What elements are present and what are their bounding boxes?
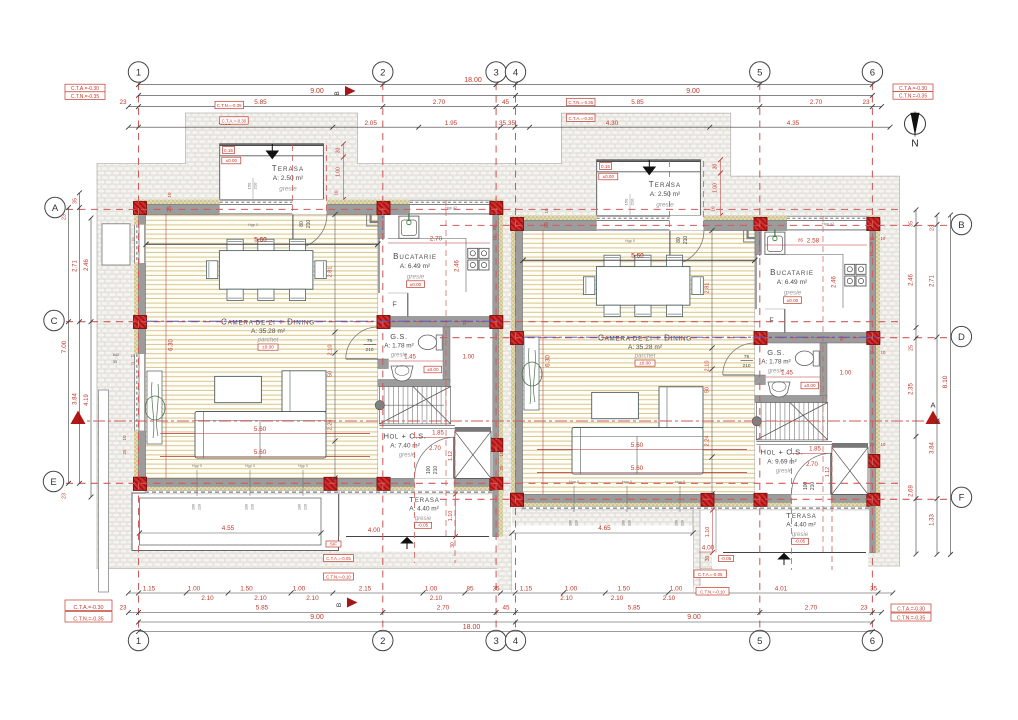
svg-text:100: 100 bbox=[569, 520, 573, 526]
svg-text:100: 100 bbox=[622, 520, 626, 526]
svg-text:23: 23 bbox=[119, 605, 127, 612]
svg-text:5.60: 5.60 bbox=[631, 465, 644, 472]
svg-text:A: 35.28 m²: A: 35.28 m² bbox=[251, 328, 286, 335]
svg-text:G.S.: G.S. bbox=[767, 348, 784, 357]
svg-text:2.70: 2.70 bbox=[430, 236, 443, 243]
svg-text:30: 30 bbox=[713, 164, 719, 170]
svg-text:10: 10 bbox=[881, 442, 886, 447]
svg-text:±0.00: ±0.00 bbox=[410, 282, 422, 287]
svg-text:parchet: parchet bbox=[257, 337, 279, 344]
svg-text:100: 100 bbox=[298, 504, 302, 510]
svg-text:C.T.N.=-0.35: C.T.N.=-0.35 bbox=[71, 94, 99, 100]
svg-text:A: 2.50 m²: A: 2.50 m² bbox=[650, 191, 681, 198]
svg-text:6.30: 6.30 bbox=[546, 355, 552, 367]
svg-text:25: 25 bbox=[499, 465, 504, 471]
svg-text:4: 4 bbox=[513, 636, 518, 647]
svg-text:5,60: 5,60 bbox=[631, 253, 644, 260]
svg-text:5,60: 5,60 bbox=[254, 237, 267, 244]
svg-text:35: 35 bbox=[870, 585, 878, 592]
svg-text:9.00: 9.00 bbox=[310, 88, 324, 95]
svg-text:C.T.A.=-0.30: C.T.A.=-0.30 bbox=[71, 86, 99, 92]
svg-text:6: 6 bbox=[870, 67, 875, 78]
svg-text:9.00: 9.00 bbox=[310, 614, 324, 621]
svg-text:1.00: 1.00 bbox=[293, 585, 306, 592]
svg-text:±0.00: ±0.00 bbox=[804, 383, 816, 388]
svg-text:9.00: 9.00 bbox=[687, 614, 701, 621]
svg-text:1.00: 1.00 bbox=[840, 371, 852, 377]
svg-text:D: D bbox=[958, 332, 965, 343]
svg-text:C.T.N.=-0.35: C.T.N.=-0.35 bbox=[897, 615, 925, 621]
svg-text:F: F bbox=[959, 493, 965, 504]
svg-text:Hgp 0: Hgp 0 bbox=[298, 464, 308, 468]
svg-text:7.00: 7.00 bbox=[61, 340, 68, 353]
svg-text:10: 10 bbox=[499, 451, 504, 457]
svg-text:1.00: 1.00 bbox=[463, 355, 475, 361]
svg-text:-0.05: -0.05 bbox=[795, 539, 806, 544]
svg-text:1.10: 1.10 bbox=[705, 527, 711, 538]
svg-text:2.10: 2.10 bbox=[430, 595, 443, 602]
svg-text:±0.00: ±0.00 bbox=[787, 298, 799, 303]
svg-text:210: 210 bbox=[304, 504, 308, 510]
svg-text:210: 210 bbox=[306, 220, 312, 229]
svg-text:2.10: 2.10 bbox=[705, 361, 711, 372]
svg-text:1.00: 1.00 bbox=[565, 585, 578, 592]
svg-text:210: 210 bbox=[742, 363, 750, 369]
svg-text:-0.05: -0.05 bbox=[721, 556, 732, 561]
svg-text:3.84: 3.84 bbox=[73, 393, 79, 405]
svg-text:4.65: 4.65 bbox=[598, 525, 611, 532]
svg-text:2.46: 2.46 bbox=[455, 260, 461, 272]
svg-text:2.10: 2.10 bbox=[560, 595, 573, 602]
svg-text:1: 1 bbox=[136, 636, 141, 647]
svg-text:4.00: 4.00 bbox=[368, 527, 381, 534]
svg-text:1.33: 1.33 bbox=[930, 514, 936, 526]
svg-text:1.85: 1.85 bbox=[809, 447, 821, 453]
svg-text:6.30: 6.30 bbox=[169, 339, 175, 351]
svg-text:4: 4 bbox=[513, 67, 518, 78]
svg-text:Hgp 0: Hgp 0 bbox=[245, 464, 255, 468]
svg-text:5.60: 5.60 bbox=[254, 449, 267, 456]
svg-text:10: 10 bbox=[167, 192, 172, 198]
svg-text:A: 1.78 m²: A: 1.78 m² bbox=[384, 343, 413, 350]
svg-text:210: 210 bbox=[575, 520, 579, 526]
svg-text:-0.05: -0.05 bbox=[418, 523, 429, 528]
svg-text:2.35: 2.35 bbox=[909, 383, 915, 395]
svg-text:45: 45 bbox=[502, 605, 510, 612]
svg-text:gresie: gresie bbox=[792, 532, 809, 538]
svg-text:C.T.N.=-0.35: C.T.N.=-0.35 bbox=[217, 103, 242, 108]
svg-text:35,35: 35,35 bbox=[499, 120, 515, 127]
svg-text:A: 4.40 m²: A: 4.40 m² bbox=[409, 506, 438, 513]
svg-text:25: 25 bbox=[839, 336, 844, 342]
svg-text:4.35: 4.35 bbox=[787, 120, 800, 127]
svg-text:parchet: parchet bbox=[634, 353, 656, 360]
svg-text:A: 4.40 m²: A: 4.40 m² bbox=[786, 522, 815, 529]
svg-text:210: 210 bbox=[433, 466, 439, 475]
svg-text:gresie: gresie bbox=[656, 202, 674, 209]
svg-text:A: A bbox=[930, 401, 935, 410]
svg-text:210: 210 bbox=[251, 504, 255, 510]
svg-text:1.00: 1.00 bbox=[188, 585, 201, 592]
svg-text:0.15: 0.15 bbox=[224, 148, 233, 153]
svg-text:35: 35 bbox=[113, 360, 117, 364]
svg-text:23: 23 bbox=[860, 605, 868, 612]
svg-text:2.71: 2.71 bbox=[73, 260, 79, 272]
svg-text:85: 85 bbox=[466, 585, 474, 592]
svg-text:2.81: 2.81 bbox=[328, 267, 334, 278]
svg-text:Hgp 0: Hgp 0 bbox=[192, 464, 202, 468]
svg-text:BUCATARIE: BUCATARIE bbox=[393, 252, 437, 261]
svg-text:50: 50 bbox=[328, 371, 334, 377]
svg-text:100: 100 bbox=[192, 504, 196, 510]
svg-text:1.50: 1.50 bbox=[617, 585, 630, 592]
svg-text:gresie: gresie bbox=[776, 469, 793, 475]
svg-text:30: 30 bbox=[705, 556, 711, 562]
svg-text:25: 25 bbox=[869, 241, 874, 247]
svg-text:50: 50 bbox=[705, 387, 711, 393]
svg-text:0.15: 0.15 bbox=[601, 164, 610, 169]
svg-text:25: 25 bbox=[462, 320, 467, 326]
svg-text:8.10: 8.10 bbox=[942, 375, 949, 388]
svg-text:2.10: 2.10 bbox=[663, 595, 676, 602]
svg-text:gresie: gresie bbox=[399, 453, 416, 459]
svg-text:75: 75 bbox=[744, 354, 750, 360]
svg-text:C.T.A.=-0.05: C.T.A.=-0.05 bbox=[698, 572, 723, 577]
svg-text:C.T.N.=-0.35: C.T.N.=-0.35 bbox=[568, 100, 593, 105]
svg-text:A: 9.69 m²: A: 9.69 m² bbox=[767, 459, 796, 466]
svg-text:10: 10 bbox=[869, 251, 874, 257]
svg-text:±0.00: ±0.00 bbox=[262, 345, 274, 350]
svg-text:150: 150 bbox=[247, 182, 252, 189]
svg-text:9.00: 9.00 bbox=[686, 88, 700, 95]
svg-text:C.T.A.=-0.05: C.T.A.=-0.05 bbox=[326, 556, 351, 561]
svg-text:1.00: 1.00 bbox=[670, 585, 683, 592]
svg-text:1: 1 bbox=[136, 67, 141, 78]
svg-text:2.46: 2.46 bbox=[84, 259, 90, 271]
svg-text:3.84: 3.84 bbox=[930, 442, 936, 454]
svg-text:TERASA: TERASA bbox=[272, 164, 304, 173]
svg-text:1.95: 1.95 bbox=[445, 120, 458, 127]
svg-text:35: 35 bbox=[492, 585, 500, 592]
svg-text:B: B bbox=[336, 603, 343, 607]
svg-text:SIF: SIF bbox=[330, 541, 337, 546]
svg-text:1.45: 1.45 bbox=[404, 355, 416, 361]
svg-text:2.69: 2.69 bbox=[909, 485, 915, 497]
svg-text:TERASA: TERASA bbox=[649, 180, 681, 189]
svg-text:C.T.A.=-0.30: C.T.A.=-0.30 bbox=[569, 116, 594, 121]
svg-text:23: 23 bbox=[930, 225, 936, 231]
svg-text:18.00: 18.00 bbox=[463, 624, 481, 631]
svg-text:1.45: 1.45 bbox=[781, 371, 793, 377]
svg-text:2.70: 2.70 bbox=[810, 99, 823, 106]
svg-text:5: 5 bbox=[757, 67, 762, 78]
svg-text:±0.00: ±0.00 bbox=[226, 158, 238, 163]
svg-text:E: E bbox=[50, 477, 56, 488]
svg-text:2: 2 bbox=[380, 67, 385, 78]
svg-text:1.12: 1.12 bbox=[825, 467, 831, 477]
svg-text:4.19: 4.19 bbox=[84, 394, 90, 406]
svg-text:80: 80 bbox=[676, 237, 682, 243]
svg-text:100: 100 bbox=[675, 520, 679, 526]
svg-text:1.12: 1.12 bbox=[448, 451, 454, 461]
svg-text:4.30: 4.30 bbox=[606, 120, 619, 127]
svg-text:F: F bbox=[392, 302, 396, 309]
svg-text:N: N bbox=[911, 139, 918, 150]
svg-text:gresie: gresie bbox=[407, 274, 425, 281]
svg-text:5.60: 5.60 bbox=[254, 426, 267, 433]
svg-text:642: 642 bbox=[113, 353, 119, 357]
svg-text:10: 10 bbox=[544, 208, 549, 214]
svg-text:23: 23 bbox=[862, 99, 870, 106]
svg-text:5.85: 5.85 bbox=[256, 605, 269, 612]
svg-text:2.46: 2.46 bbox=[832, 276, 838, 288]
svg-text:C.T.A.=-0.30: C.T.A.=-0.30 bbox=[899, 86, 927, 92]
svg-text:18.00: 18.00 bbox=[464, 77, 482, 84]
svg-text:1.15: 1.15 bbox=[520, 585, 533, 592]
svg-text:10: 10 bbox=[122, 435, 127, 441]
svg-text:3: 3 bbox=[493, 67, 498, 78]
svg-text:45: 45 bbox=[502, 99, 510, 106]
svg-text:2.10: 2.10 bbox=[328, 345, 334, 356]
svg-text:2.70: 2.70 bbox=[433, 99, 446, 106]
svg-text:85: 85 bbox=[798, 238, 804, 243]
svg-text:35: 35 bbox=[909, 221, 915, 227]
svg-text:23: 23 bbox=[62, 214, 68, 220]
svg-text:1.00: 1.00 bbox=[425, 585, 438, 592]
svg-text:2.70: 2.70 bbox=[805, 605, 818, 612]
svg-text:A: A bbox=[52, 203, 59, 214]
svg-text:210: 210 bbox=[198, 504, 202, 510]
svg-text:2.70: 2.70 bbox=[806, 462, 818, 468]
svg-text:2.24: 2.24 bbox=[705, 436, 711, 447]
svg-text:10: 10 bbox=[881, 350, 886, 355]
svg-text:210: 210 bbox=[683, 236, 689, 245]
svg-text:2.70: 2.70 bbox=[429, 446, 441, 452]
svg-text:gresie: gresie bbox=[784, 290, 802, 297]
svg-text:5.60: 5.60 bbox=[631, 442, 644, 449]
svg-text:23: 23 bbox=[119, 99, 127, 106]
svg-text:4.55: 4.55 bbox=[222, 525, 235, 532]
svg-text:75: 75 bbox=[367, 338, 373, 344]
svg-text:23: 23 bbox=[62, 493, 68, 499]
svg-text:5.85: 5.85 bbox=[254, 99, 267, 106]
svg-text:C.T.A.=-0.30: C.T.A.=-0.30 bbox=[73, 605, 103, 611]
svg-text:2.10: 2.10 bbox=[201, 595, 214, 602]
svg-text:2.10: 2.10 bbox=[306, 595, 319, 602]
svg-text:3: 3 bbox=[493, 636, 498, 647]
svg-text:C: C bbox=[51, 316, 58, 327]
svg-text:A: 6.49 m²: A: 6.49 m² bbox=[400, 263, 431, 270]
svg-text:C.T.N.=-0.35: C.T.N.=-0.35 bbox=[73, 616, 103, 622]
svg-text:C.T.N.=-0.10: C.T.N.=-0.10 bbox=[700, 589, 725, 594]
svg-text:5: 5 bbox=[757, 636, 762, 647]
svg-text:210: 210 bbox=[681, 520, 685, 526]
svg-text:gresie: gresie bbox=[279, 186, 297, 193]
svg-text:A: 7.40 m²: A: 7.40 m² bbox=[390, 443, 419, 450]
svg-text:B: B bbox=[334, 91, 341, 95]
svg-text:±0.00: ±0.00 bbox=[427, 367, 439, 372]
svg-text:A: 6.49 m²: A: 6.49 m² bbox=[777, 279, 808, 286]
svg-text:A: 35.28 m²: A: 35.28 m² bbox=[628, 344, 663, 351]
svg-text:BUCATARIE: BUCATARIE bbox=[770, 268, 814, 277]
svg-text:2.10: 2.10 bbox=[611, 595, 624, 602]
svg-text:A: 2.50 m²: A: 2.50 m² bbox=[273, 175, 304, 182]
svg-text:Hgp 0: Hgp 0 bbox=[625, 239, 635, 243]
svg-text:2.15: 2.15 bbox=[359, 585, 372, 592]
svg-text:100: 100 bbox=[426, 466, 432, 475]
svg-text:10: 10 bbox=[881, 236, 886, 241]
svg-text:1.00: 1.00 bbox=[713, 183, 719, 193]
svg-text:1.00: 1.00 bbox=[336, 167, 342, 177]
svg-text:1.50: 1.50 bbox=[240, 585, 253, 592]
svg-text:2.58: 2.58 bbox=[807, 238, 820, 245]
svg-text:25: 25 bbox=[909, 345, 915, 351]
svg-text:C.T.A.=-0.30: C.T.A.=-0.30 bbox=[222, 119, 247, 124]
svg-text:210: 210 bbox=[628, 520, 632, 526]
svg-text:210: 210 bbox=[810, 482, 816, 491]
svg-text:A: 1.78 m²: A: 1.78 m² bbox=[761, 359, 790, 366]
svg-text:2.71: 2.71 bbox=[930, 275, 936, 287]
svg-text:C.T.A.=-0.30: C.T.A.=-0.30 bbox=[897, 606, 925, 612]
svg-text:2.05: 2.05 bbox=[364, 120, 377, 127]
svg-text:100: 100 bbox=[245, 504, 249, 510]
svg-text:2: 2 bbox=[380, 636, 385, 647]
svg-text:210: 210 bbox=[365, 347, 373, 353]
svg-text:1.10: 1.10 bbox=[448, 511, 454, 522]
svg-text:gresie: gresie bbox=[415, 516, 432, 522]
svg-text:5.85: 5.85 bbox=[631, 99, 644, 106]
svg-text:C.T.N.=-0.10: C.T.N.=-0.10 bbox=[326, 574, 351, 579]
svg-text:80: 80 bbox=[299, 221, 305, 227]
svg-text:10: 10 bbox=[334, 190, 339, 196]
svg-text:Hgp 0: Hgp 0 bbox=[248, 223, 258, 227]
svg-text:2.81: 2.81 bbox=[705, 283, 711, 294]
svg-text:1.85: 1.85 bbox=[432, 431, 444, 437]
svg-text:2.70: 2.70 bbox=[437, 605, 450, 612]
svg-text:2.10: 2.10 bbox=[254, 595, 267, 602]
svg-text:C.T.N.=-0.35: C.T.N.=-0.35 bbox=[899, 94, 927, 100]
svg-text:±0.00: ±0.00 bbox=[603, 174, 615, 179]
svg-text:30: 30 bbox=[336, 148, 342, 154]
svg-text:±0.00: ±0.00 bbox=[639, 361, 651, 366]
svg-text:25: 25 bbox=[122, 449, 127, 455]
svg-text:10: 10 bbox=[711, 206, 716, 212]
svg-text:2.46: 2.46 bbox=[909, 274, 915, 286]
svg-text:5.85: 5.85 bbox=[628, 605, 641, 612]
svg-text:6: 6 bbox=[870, 636, 875, 647]
svg-text:35: 35 bbox=[73, 198, 79, 204]
svg-text:B: B bbox=[958, 220, 964, 231]
svg-text:F: F bbox=[769, 318, 773, 325]
svg-text:4.01: 4.01 bbox=[775, 585, 788, 592]
svg-text:150: 150 bbox=[624, 198, 629, 205]
svg-text:G.S.: G.S. bbox=[390, 332, 407, 341]
svg-text:1.15: 1.15 bbox=[143, 585, 156, 592]
